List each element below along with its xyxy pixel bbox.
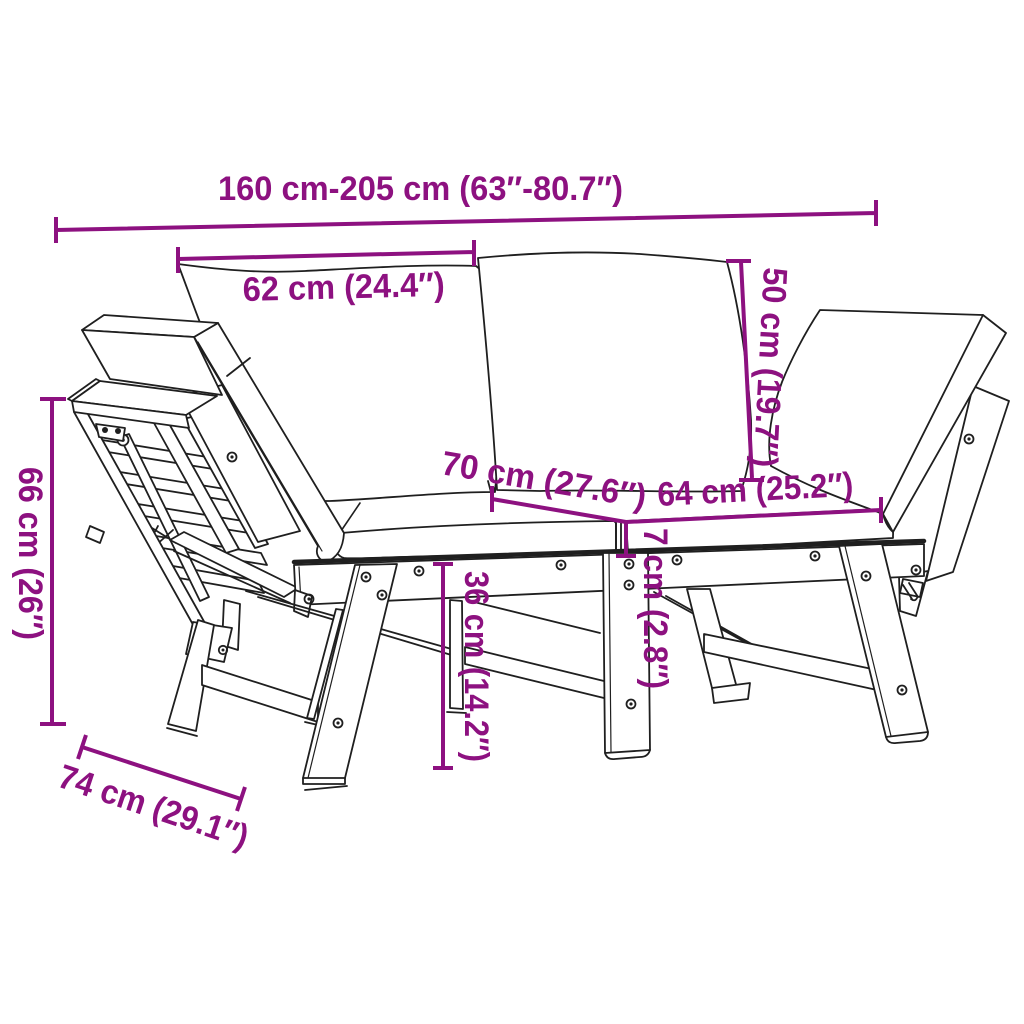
svg-text:160 cm-205 cm (63″-80.7″): 160 cm-205 cm (63″-80.7″): [218, 170, 623, 208]
svg-text:62 cm (24.4″): 62 cm (24.4″): [242, 266, 445, 309]
svg-text:7 cm (2.8″): 7 cm (2.8″): [636, 528, 674, 689]
svg-text:36 cm (14.2″): 36 cm (14.2″): [457, 571, 495, 762]
svg-text:66 cm (26″): 66 cm (26″): [11, 467, 49, 640]
